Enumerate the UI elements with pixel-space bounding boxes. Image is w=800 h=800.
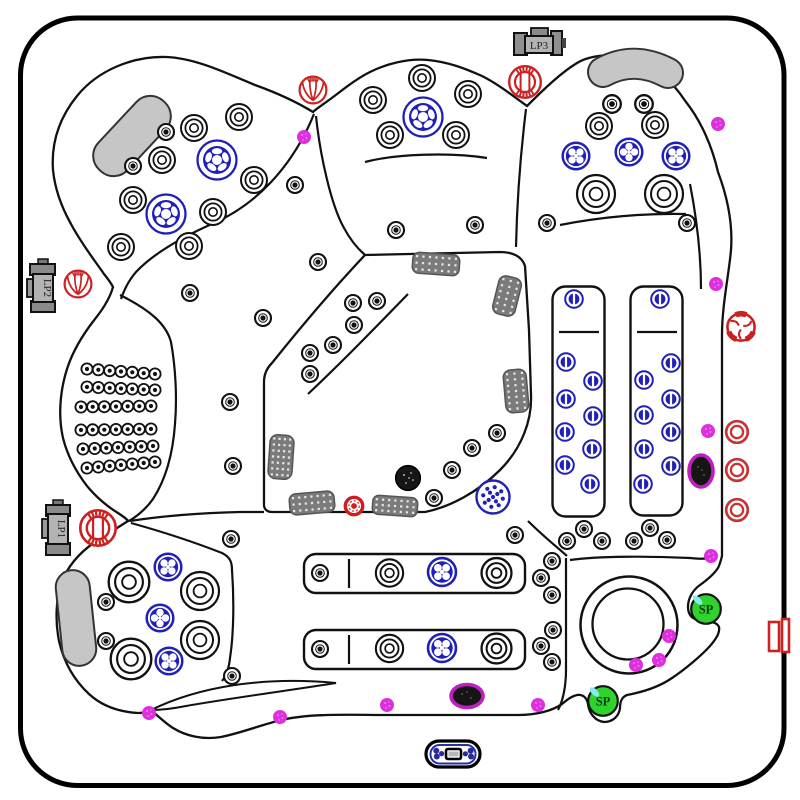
svg-text:LP3: LP3 bbox=[530, 40, 549, 52]
svg-text:LP2: LP2 bbox=[41, 279, 53, 297]
svg-text:LP1: LP1 bbox=[55, 520, 67, 538]
